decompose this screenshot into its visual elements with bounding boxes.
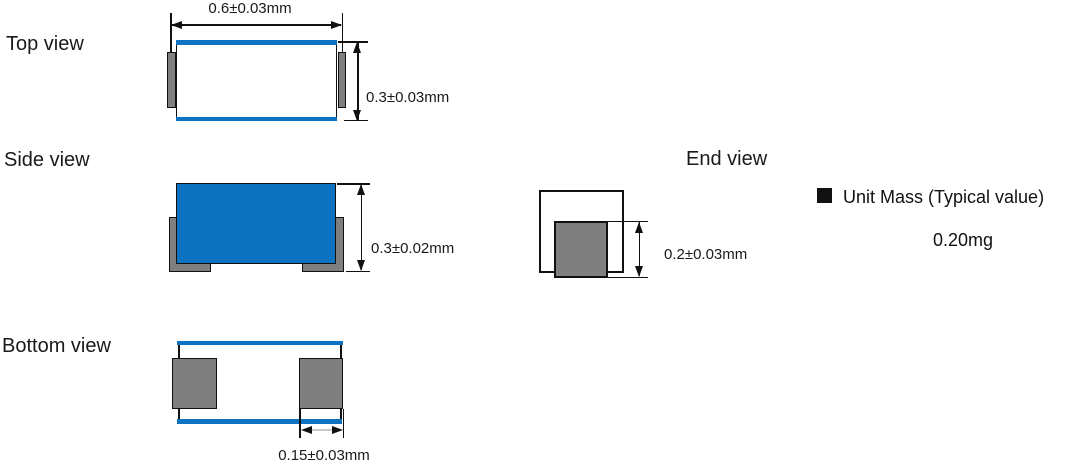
arrow-up-icon — [635, 222, 643, 233]
bottom-view-title: Bottom view — [2, 334, 111, 358]
side-view-title: Side view — [4, 148, 90, 172]
bottom-view-top-electrode — [177, 341, 343, 346]
bottom-view-dim-extension-line-left — [299, 409, 301, 438]
top-view-width-extension-line-right — [342, 13, 344, 54]
end-view-title: End view — [686, 147, 767, 171]
bottom-view-dim-extension-line-right — [343, 409, 345, 438]
unit-mass-title: Unit Mass (Typical value) — [843, 186, 1044, 208]
bottom-view-dimension-line — [310, 429, 334, 431]
top-view-width-dimension-line — [172, 24, 341, 26]
side-view-height-dimension-line — [361, 185, 363, 270]
arrow-right-icon — [331, 21, 342, 29]
top-view-body — [176, 40, 337, 121]
top-view-height-dim-label: 0.3±0.03mm — [366, 89, 449, 107]
side-view-body — [176, 183, 336, 265]
arrow-right-icon — [332, 426, 343, 434]
top-view-top-electrode — [176, 40, 337, 45]
bottom-view-left-terminal — [172, 358, 217, 410]
side-view-height-dim-label: 0.3±0.02mm — [371, 240, 454, 258]
bottom-view-terminal-width-dim-label: 0.15±0.03mm — [268, 447, 380, 465]
arrow-left-icon — [301, 426, 312, 434]
top-view-width-extension-line-left — [170, 13, 172, 55]
arrow-up-icon — [353, 42, 361, 53]
top-view-height-dimension-line — [357, 43, 359, 120]
arrow-up-icon — [357, 184, 365, 195]
bottom-view-right-terminal — [299, 358, 343, 410]
unit-mass-value: 0.20mg — [843, 229, 1080, 251]
arrow-left-icon — [171, 21, 182, 29]
side-view-height-extension-line-top — [337, 183, 370, 185]
top-view-left-terminal — [167, 52, 176, 108]
arrow-down-icon — [635, 266, 643, 277]
package-dimensions-diagram: Top view 0.6±0.03mm 0.3±0.03mm Side view — [0, 0, 1080, 466]
end-view-terminal-height-dim-label: 0.2±0.03mm — [664, 246, 747, 264]
bottom-view-bottom-electrode — [177, 419, 342, 424]
top-view-title: Top view — [6, 32, 84, 56]
arrow-down-icon — [353, 110, 361, 121]
top-view-bottom-electrode — [176, 117, 337, 122]
end-view-terminal — [554, 221, 608, 278]
unit-mass-bullet-icon — [817, 188, 832, 203]
top-view-right-terminal — [338, 52, 347, 108]
arrow-down-icon — [357, 260, 365, 271]
top-view-width-dim-label: 0.6±0.03mm — [180, 0, 320, 18]
